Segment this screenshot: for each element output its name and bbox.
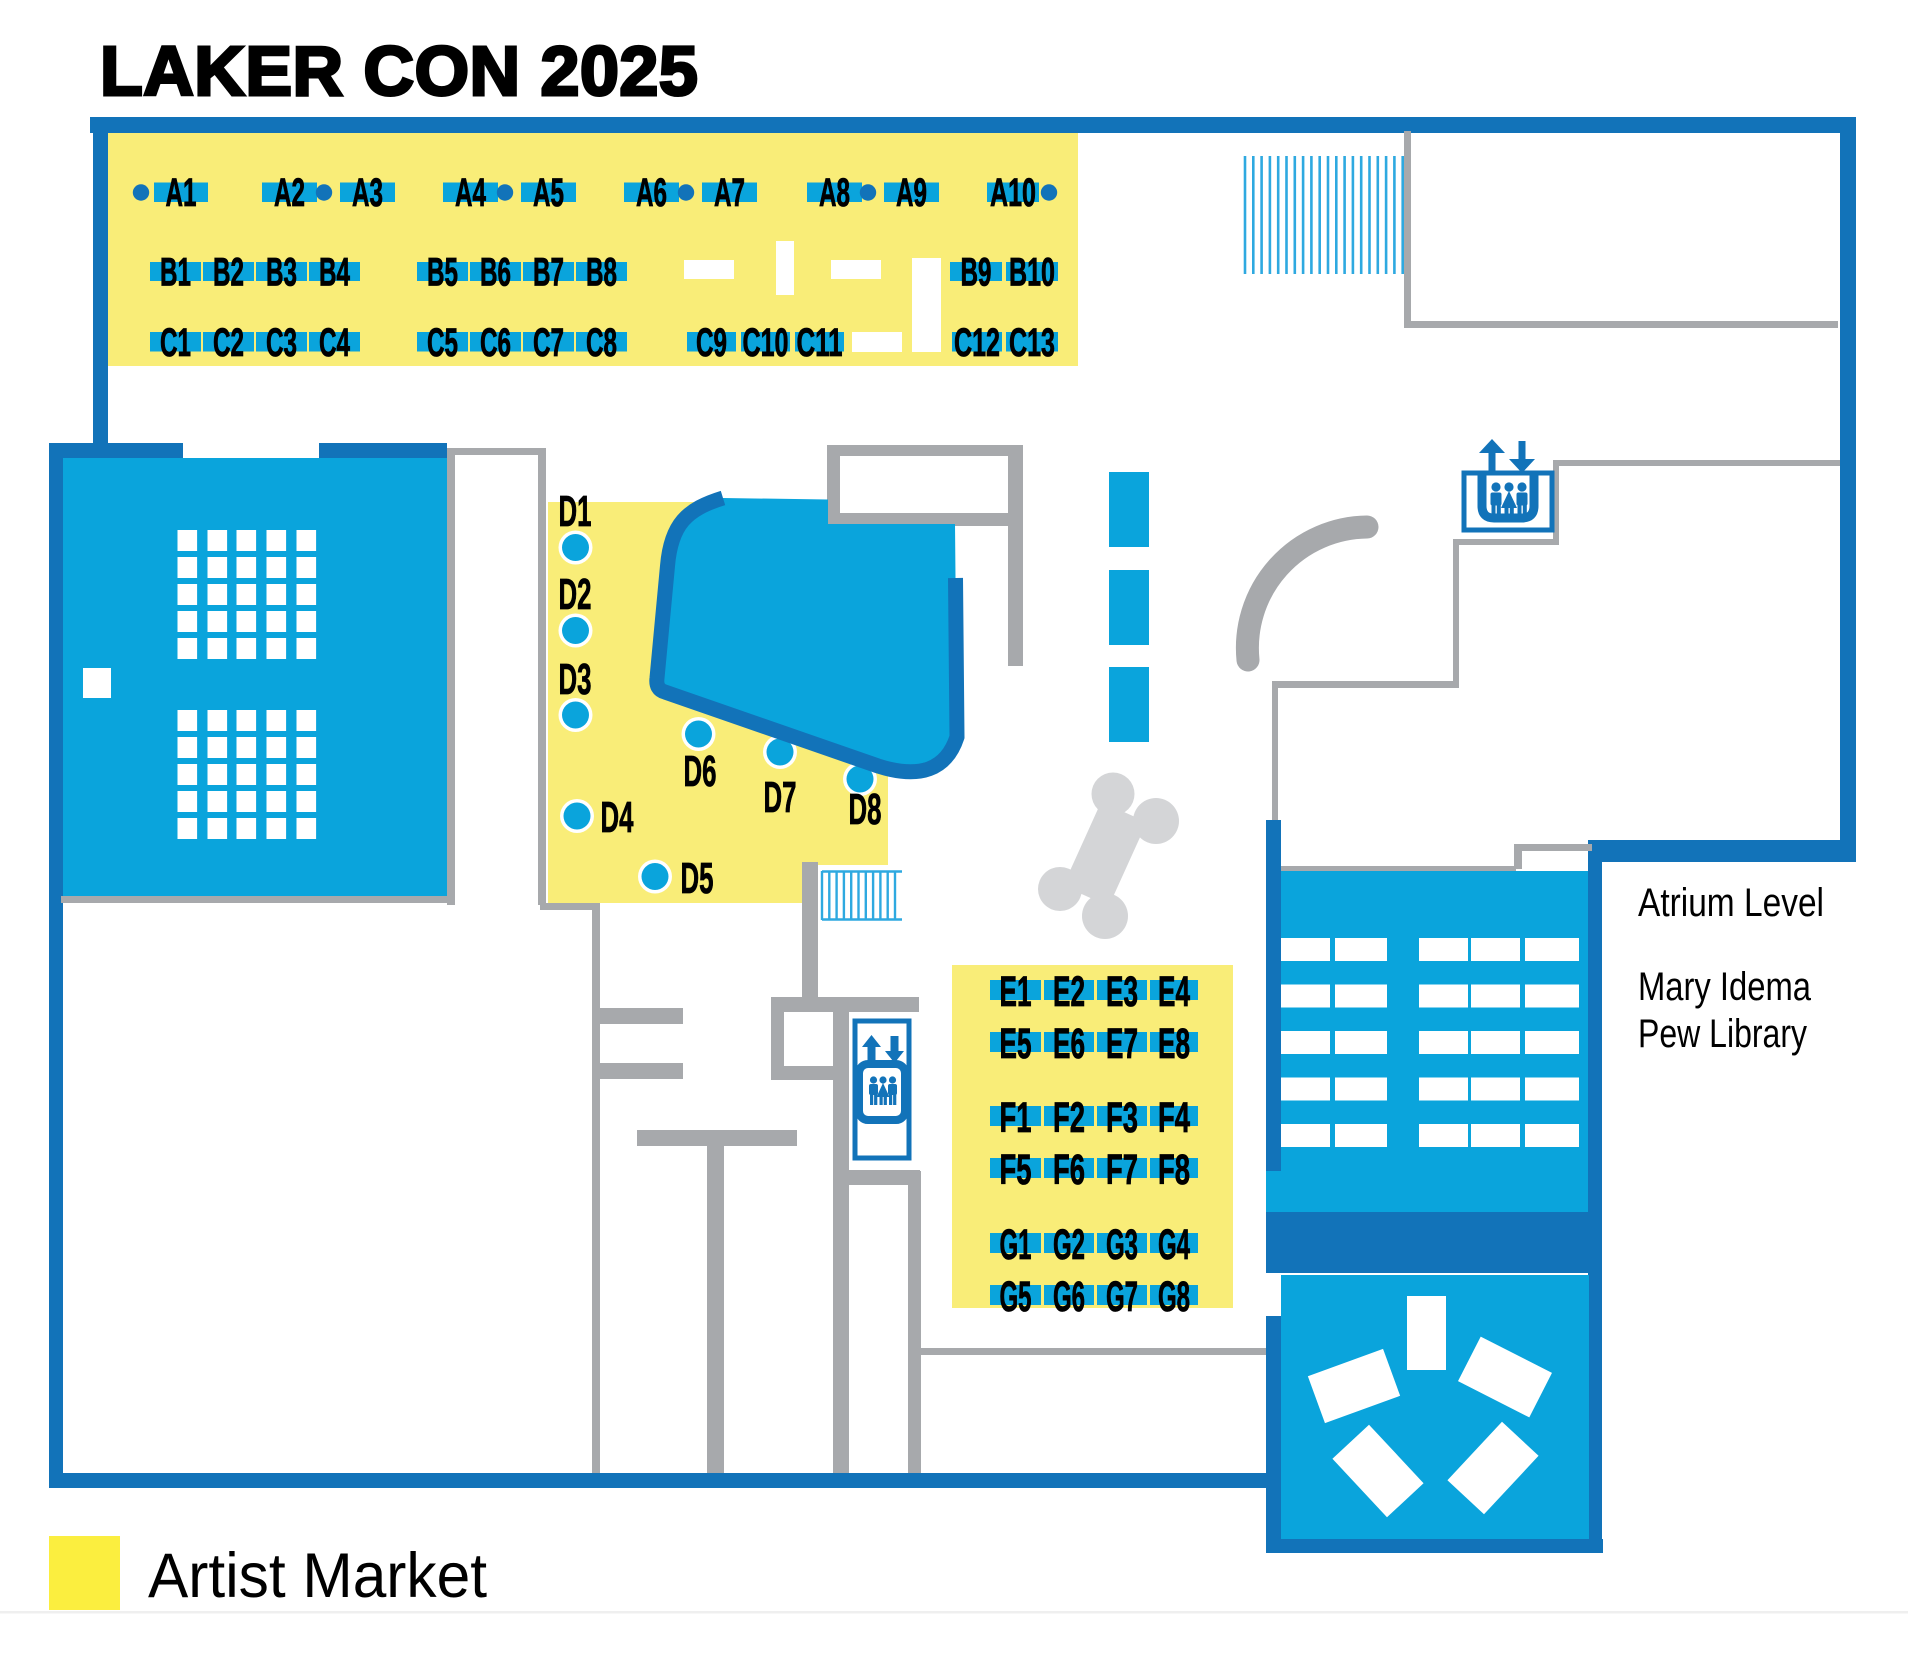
svg-text:C4: C4 [319,321,350,365]
svg-text:C8: C8 [586,321,617,365]
svg-text:Mary Idema: Mary Idema [1638,965,1812,1009]
svg-text:C5: C5 [427,321,458,365]
svg-text:F7: F7 [1106,1146,1138,1194]
svg-text:G4: G4 [1158,1221,1190,1269]
svg-text:C11: C11 [797,321,843,365]
svg-text:E8: E8 [1158,1020,1190,1068]
svg-text:A3: A3 [352,171,383,215]
svg-text:D1: D1 [559,487,592,536]
svg-text:F8: F8 [1158,1146,1190,1194]
svg-text:E4: E4 [1158,968,1190,1016]
svg-text:A1: A1 [166,171,197,215]
svg-text:F6: F6 [1053,1146,1085,1194]
svg-text:B8: B8 [586,251,617,295]
svg-text:C3: C3 [266,321,297,365]
svg-text:Artist Market: Artist Market [148,1541,487,1611]
svg-text:C10: C10 [743,321,789,365]
svg-text:E6: E6 [1053,1020,1085,1068]
svg-text:B4: B4 [319,251,350,295]
svg-text:Atrium Level: Atrium Level [1638,881,1824,925]
svg-text:C9: C9 [696,321,727,365]
svg-text:D7: D7 [764,773,797,822]
svg-text:D3: D3 [559,655,592,704]
svg-text:B2: B2 [213,251,244,295]
svg-text:E7: E7 [1106,1020,1138,1068]
svg-text:C6: C6 [480,321,511,365]
svg-text:F5: F5 [1000,1146,1032,1194]
svg-text:C2: C2 [213,321,244,365]
svg-text:C12: C12 [954,321,1000,365]
svg-text:A8: A8 [819,171,850,215]
svg-text:D5: D5 [681,854,714,903]
svg-text:A9: A9 [896,171,927,215]
svg-text:D6: D6 [684,747,717,796]
svg-text:E2: E2 [1053,968,1085,1016]
svg-text:D2: D2 [559,570,592,619]
svg-text:B6: B6 [480,251,511,295]
svg-text:D4: D4 [601,793,634,842]
svg-text:F4: F4 [1158,1094,1190,1142]
svg-text:B10: B10 [1009,251,1055,295]
svg-text:B5: B5 [427,251,458,295]
svg-text:A5: A5 [533,171,564,215]
svg-text:F3: F3 [1106,1094,1138,1142]
svg-text:A2: A2 [274,171,305,215]
svg-text:F1: F1 [1000,1094,1032,1142]
svg-text:E3: E3 [1106,968,1138,1016]
svg-text:A7: A7 [714,171,745,215]
svg-text:F2: F2 [1053,1094,1085,1142]
svg-text:A4: A4 [455,171,486,215]
svg-text:A6: A6 [636,171,667,215]
svg-text:E5: E5 [1000,1020,1032,1068]
svg-text:A10: A10 [990,171,1036,215]
svg-text:D8: D8 [849,785,882,834]
svg-text:G1: G1 [1000,1221,1032,1269]
svg-text:E1: E1 [1000,968,1032,1016]
svg-text:B9: B9 [961,251,992,295]
svg-text:C13: C13 [1009,321,1055,365]
svg-text:G2: G2 [1053,1221,1085,1269]
svg-text:LAKER CON 2025: LAKER CON 2025 [100,32,698,110]
svg-text:G3: G3 [1106,1221,1138,1269]
svg-text:C7: C7 [533,321,564,365]
svg-text:G5: G5 [1000,1273,1032,1321]
svg-text:C1: C1 [160,321,191,365]
svg-text:Pew Library: Pew Library [1638,1012,1807,1056]
svg-text:B1: B1 [160,251,191,295]
svg-text:B7: B7 [533,251,564,295]
svg-text:B3: B3 [266,251,297,295]
svg-text:G8: G8 [1158,1273,1190,1321]
svg-text:G7: G7 [1106,1273,1138,1321]
svg-text:G6: G6 [1053,1273,1085,1321]
